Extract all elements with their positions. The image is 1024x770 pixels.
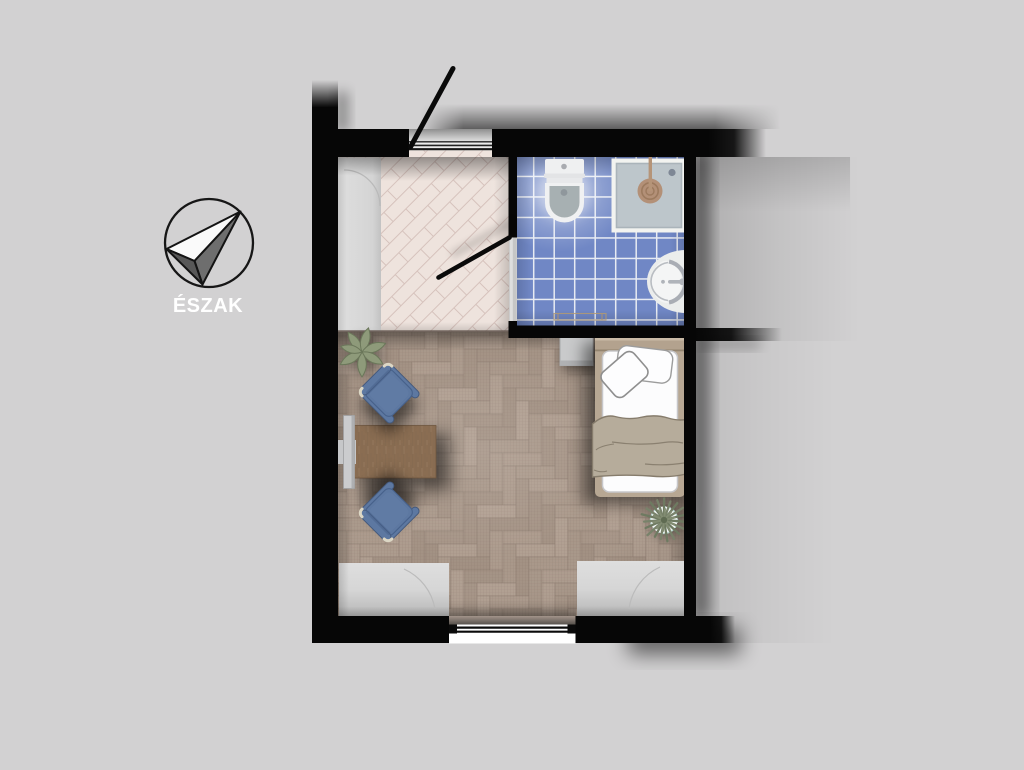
svg-text:ÉSZAK: ÉSZAK	[173, 294, 243, 317]
